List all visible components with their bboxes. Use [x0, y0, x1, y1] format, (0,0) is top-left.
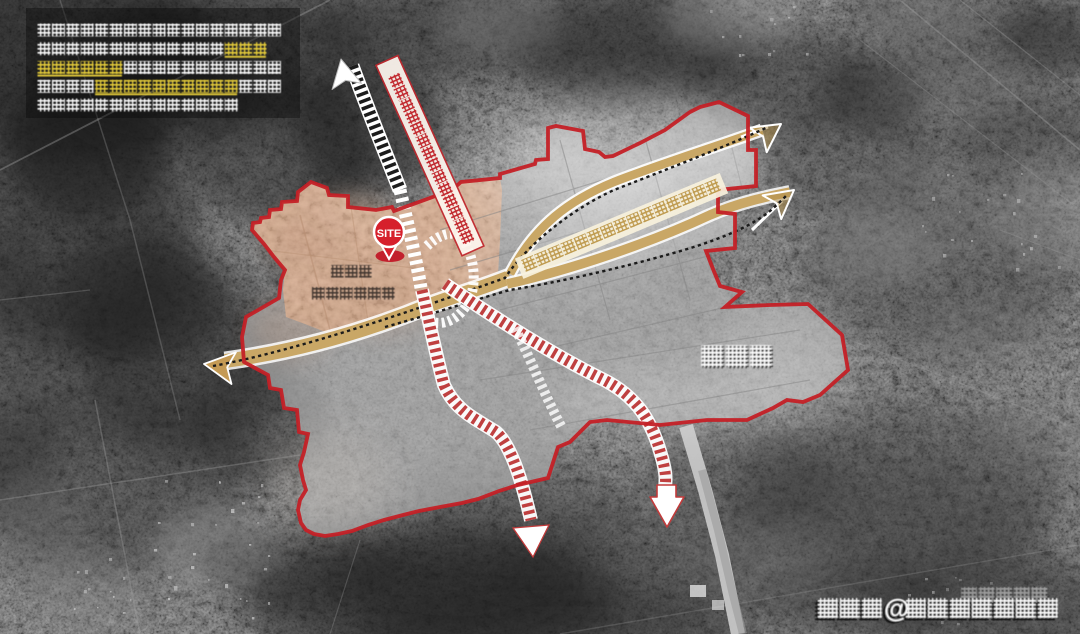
svg-text:@: @ [884, 593, 909, 623]
svg-text:SITE: SITE [377, 228, 401, 240]
